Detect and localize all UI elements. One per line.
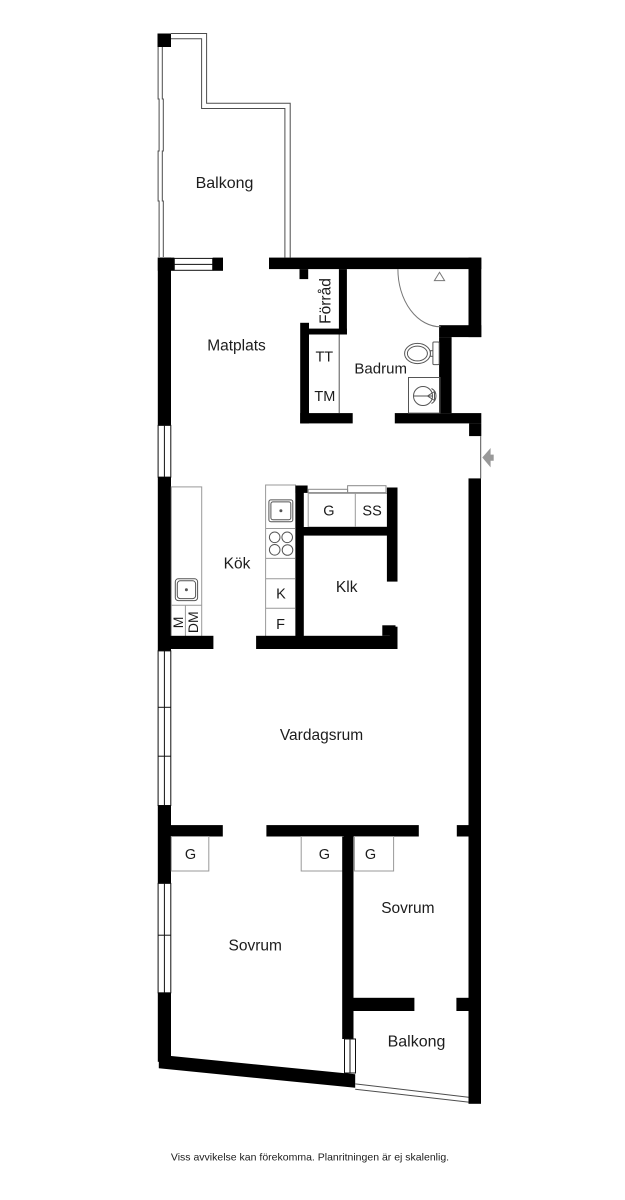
svg-text:Vardagsrum: Vardagsrum — [280, 727, 363, 744]
svg-text:K: K — [276, 587, 286, 603]
svg-text:Kök: Kök — [224, 556, 251, 573]
svg-text:Klk: Klk — [336, 579, 358, 596]
svg-text:Sovrum: Sovrum — [228, 938, 281, 955]
svg-text:F: F — [276, 617, 285, 633]
svg-text:Matplats: Matplats — [207, 338, 266, 355]
svg-text:Balkong: Balkong — [196, 175, 254, 192]
svg-text:SS: SS — [362, 504, 381, 520]
svg-text:DM: DM — [185, 611, 201, 633]
svg-text:G: G — [365, 847, 376, 863]
svg-text:M: M — [170, 617, 186, 629]
svg-text:G: G — [323, 504, 334, 520]
svg-text:Förråd: Förråd — [317, 278, 334, 324]
svg-text:TT: TT — [315, 350, 333, 366]
svg-text:Balkong: Balkong — [388, 1034, 446, 1051]
svg-text:TM: TM — [314, 389, 335, 405]
svg-text:Badrum: Badrum — [354, 361, 407, 378]
svg-text:G: G — [185, 847, 196, 863]
svg-text:G: G — [319, 847, 330, 863]
svg-text:Viss avvikelse kan förekomma.: Viss avvikelse kan förekomma. Planritnin… — [171, 1152, 449, 1164]
svg-text:Sovrum: Sovrum — [381, 900, 434, 917]
